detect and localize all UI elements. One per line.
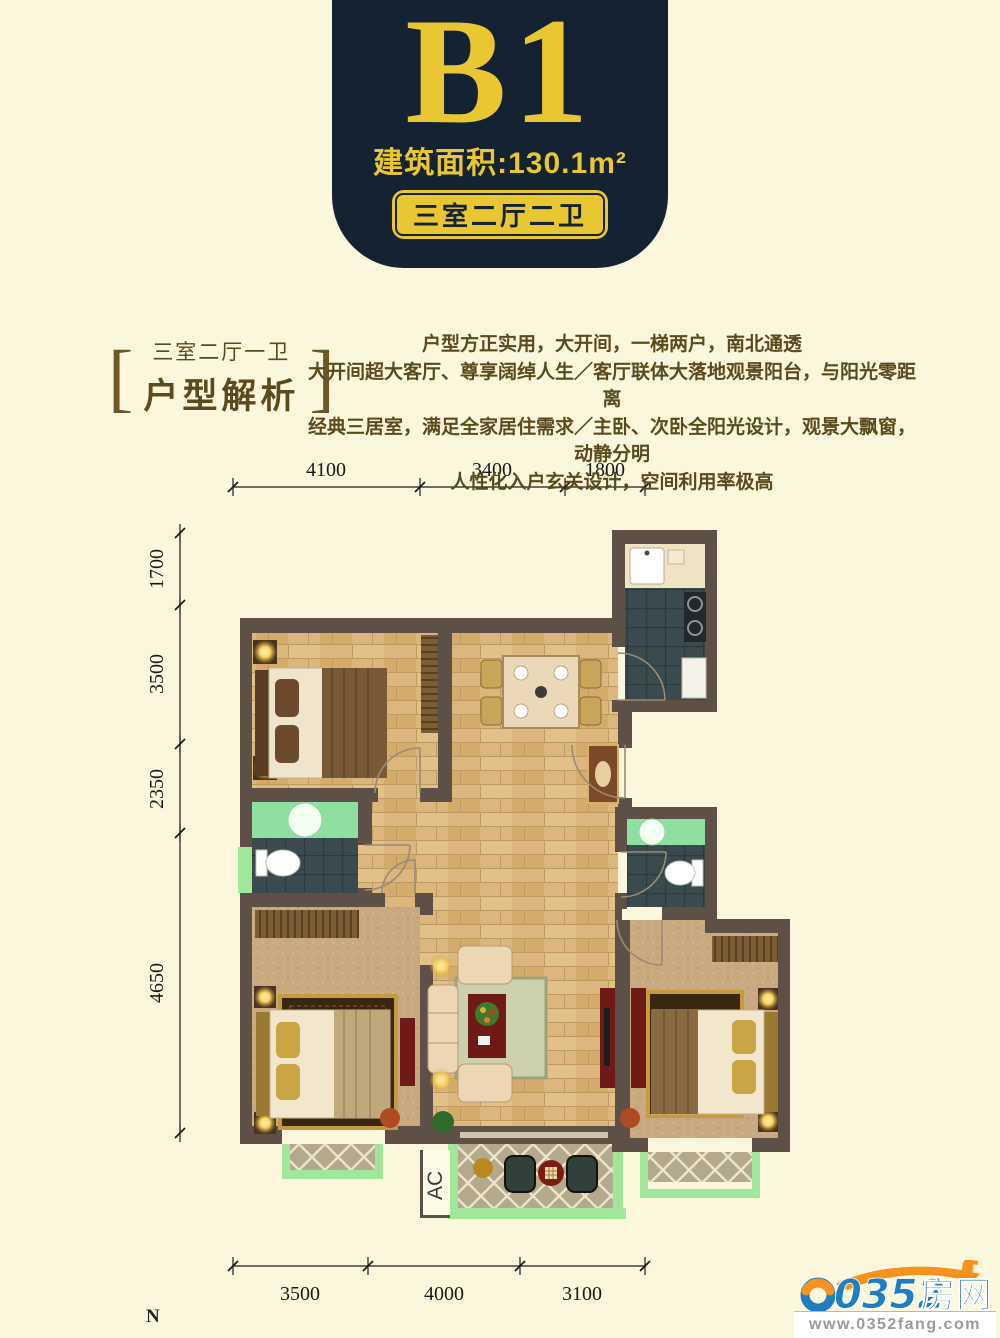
dim-label: 3500 [280,1283,320,1305]
plant [473,1158,493,1178]
entry-rug [588,745,618,803]
sink-bath-right [639,819,665,845]
bed-headboard [255,670,269,776]
wardrobe [421,635,438,733]
dim-label: 4650 [146,963,168,1003]
unit-banner: B1 建筑面积:130.1m² 三室二厅二卫 [332,0,668,268]
dim-label: 4000 [424,1283,464,1305]
tv-cabinet-bedroom2 [631,988,646,1088]
sofa-main [428,985,458,1073]
wardrobe [255,910,359,938]
dining-chair [481,660,502,688]
site-logo: 0352 房网 www.0352fang.com [794,1260,996,1338]
description-line: 人性化入户玄关设计，空间利用率极高 [305,469,919,497]
analysis-title: 户型解析 [143,368,299,419]
logo-website-url: www.0352fang.com [794,1311,996,1338]
compass-north-label: N [146,1306,160,1327]
plant [432,1111,454,1133]
sink-bath-left [288,803,322,837]
bed-headboard [256,1012,270,1116]
dining-chair [481,697,502,725]
tv-stand-master [400,1018,415,1086]
layout-tag-text: 三室二厅二卫 [395,193,605,236]
logo-artwork: 0352 房网 [794,1260,996,1314]
balcony-chair [567,1156,597,1192]
ac-platform: AC [420,1150,450,1218]
description-paragraph: 户型方正实用，大开间，一梯两户，南北通透 大开间超大客厅、尊享阔绰人生／客厅联体… [305,331,919,496]
dim-label: 2350 [146,769,168,809]
pillow [276,1064,300,1100]
bed-blanket [334,1010,390,1118]
unit-code: B1 [405,0,594,152]
toilet-bath-right [665,861,695,885]
bay-left-tiles [290,1144,375,1170]
pillow [732,1060,756,1094]
dim-label: 3100 [562,1283,602,1305]
pillow [275,725,299,763]
dining-chair [580,697,601,725]
bed-headboard [764,1012,778,1112]
pillow [275,679,299,717]
toilet-bath-left [266,850,300,876]
analysis-heading: [ 三室二厅一卫 户型解析 ] [108,336,335,419]
plant [620,1108,640,1128]
bay-right-tiles [648,1152,752,1182]
kitchen-fridge [682,658,706,698]
layout-tag-badge: 三室二厅二卫 [392,190,608,239]
pillow [732,1020,756,1054]
plant [380,1108,400,1128]
logo-cjk-text: 房网 [920,1274,992,1314]
dining-chair [580,660,601,688]
description-line: 户型方正实用，大开间，一梯两户，南北通透 [305,331,919,359]
dim-label: 1700 [146,549,168,589]
dim-label: 3500 [146,654,168,694]
pillow [276,1022,300,1058]
sofa-chair [458,946,512,984]
description-line: 大开间超大客厅、尊享阔绰人生／客厅联体大落地观景阳台，与阳光零距离 [305,359,919,414]
description-line: 经典三居室，满足全家居住需求／主卧、次卧全阳光设计，观景大飘窗，动静分明 [305,414,919,469]
sofa-chair [458,1064,512,1102]
toilet-bath-left-tank [256,850,267,876]
wardrobe [712,936,778,962]
poster-page: AC 4100 3400 1800 1700 3500 2350 4650 35… [0,0,1000,1338]
area-label: 建筑面积:130.1m² [373,138,627,182]
left-bracket: [ [108,343,133,413]
ac-label: AC [424,1171,447,1200]
balcony-chair [505,1156,535,1192]
analysis-subtitle: 三室二厅一卫 [152,336,290,366]
balcony-slider [460,1132,608,1138]
